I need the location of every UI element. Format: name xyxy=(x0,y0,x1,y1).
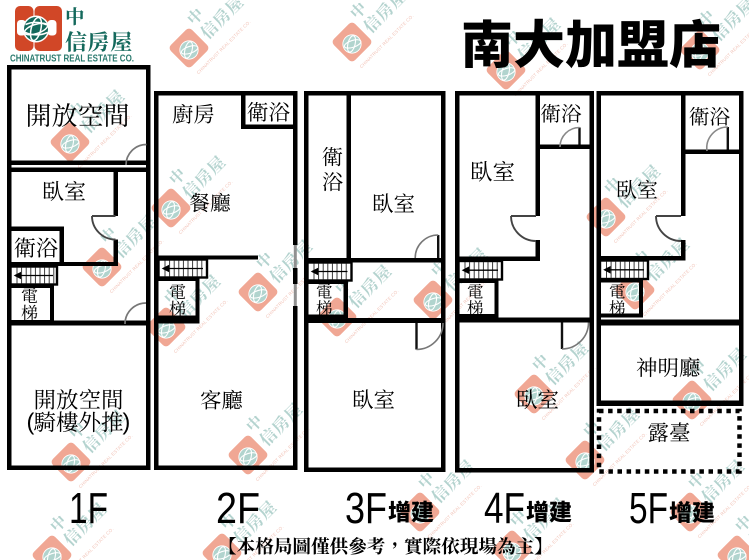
svg-text:CHINATRUST REAL ESTATE CO.: CHINATRUST REAL ESTATE CO. xyxy=(10,53,134,64)
svg-text:): ) xyxy=(123,409,131,435)
svg-text:(: ( xyxy=(27,409,35,435)
svg-text:4F: 4F xyxy=(484,484,525,533)
svg-text:3F: 3F xyxy=(345,484,387,533)
svg-text:2F: 2F xyxy=(216,484,260,533)
svg-text:5F: 5F xyxy=(629,484,668,533)
svg-text:1F: 1F xyxy=(69,484,108,533)
